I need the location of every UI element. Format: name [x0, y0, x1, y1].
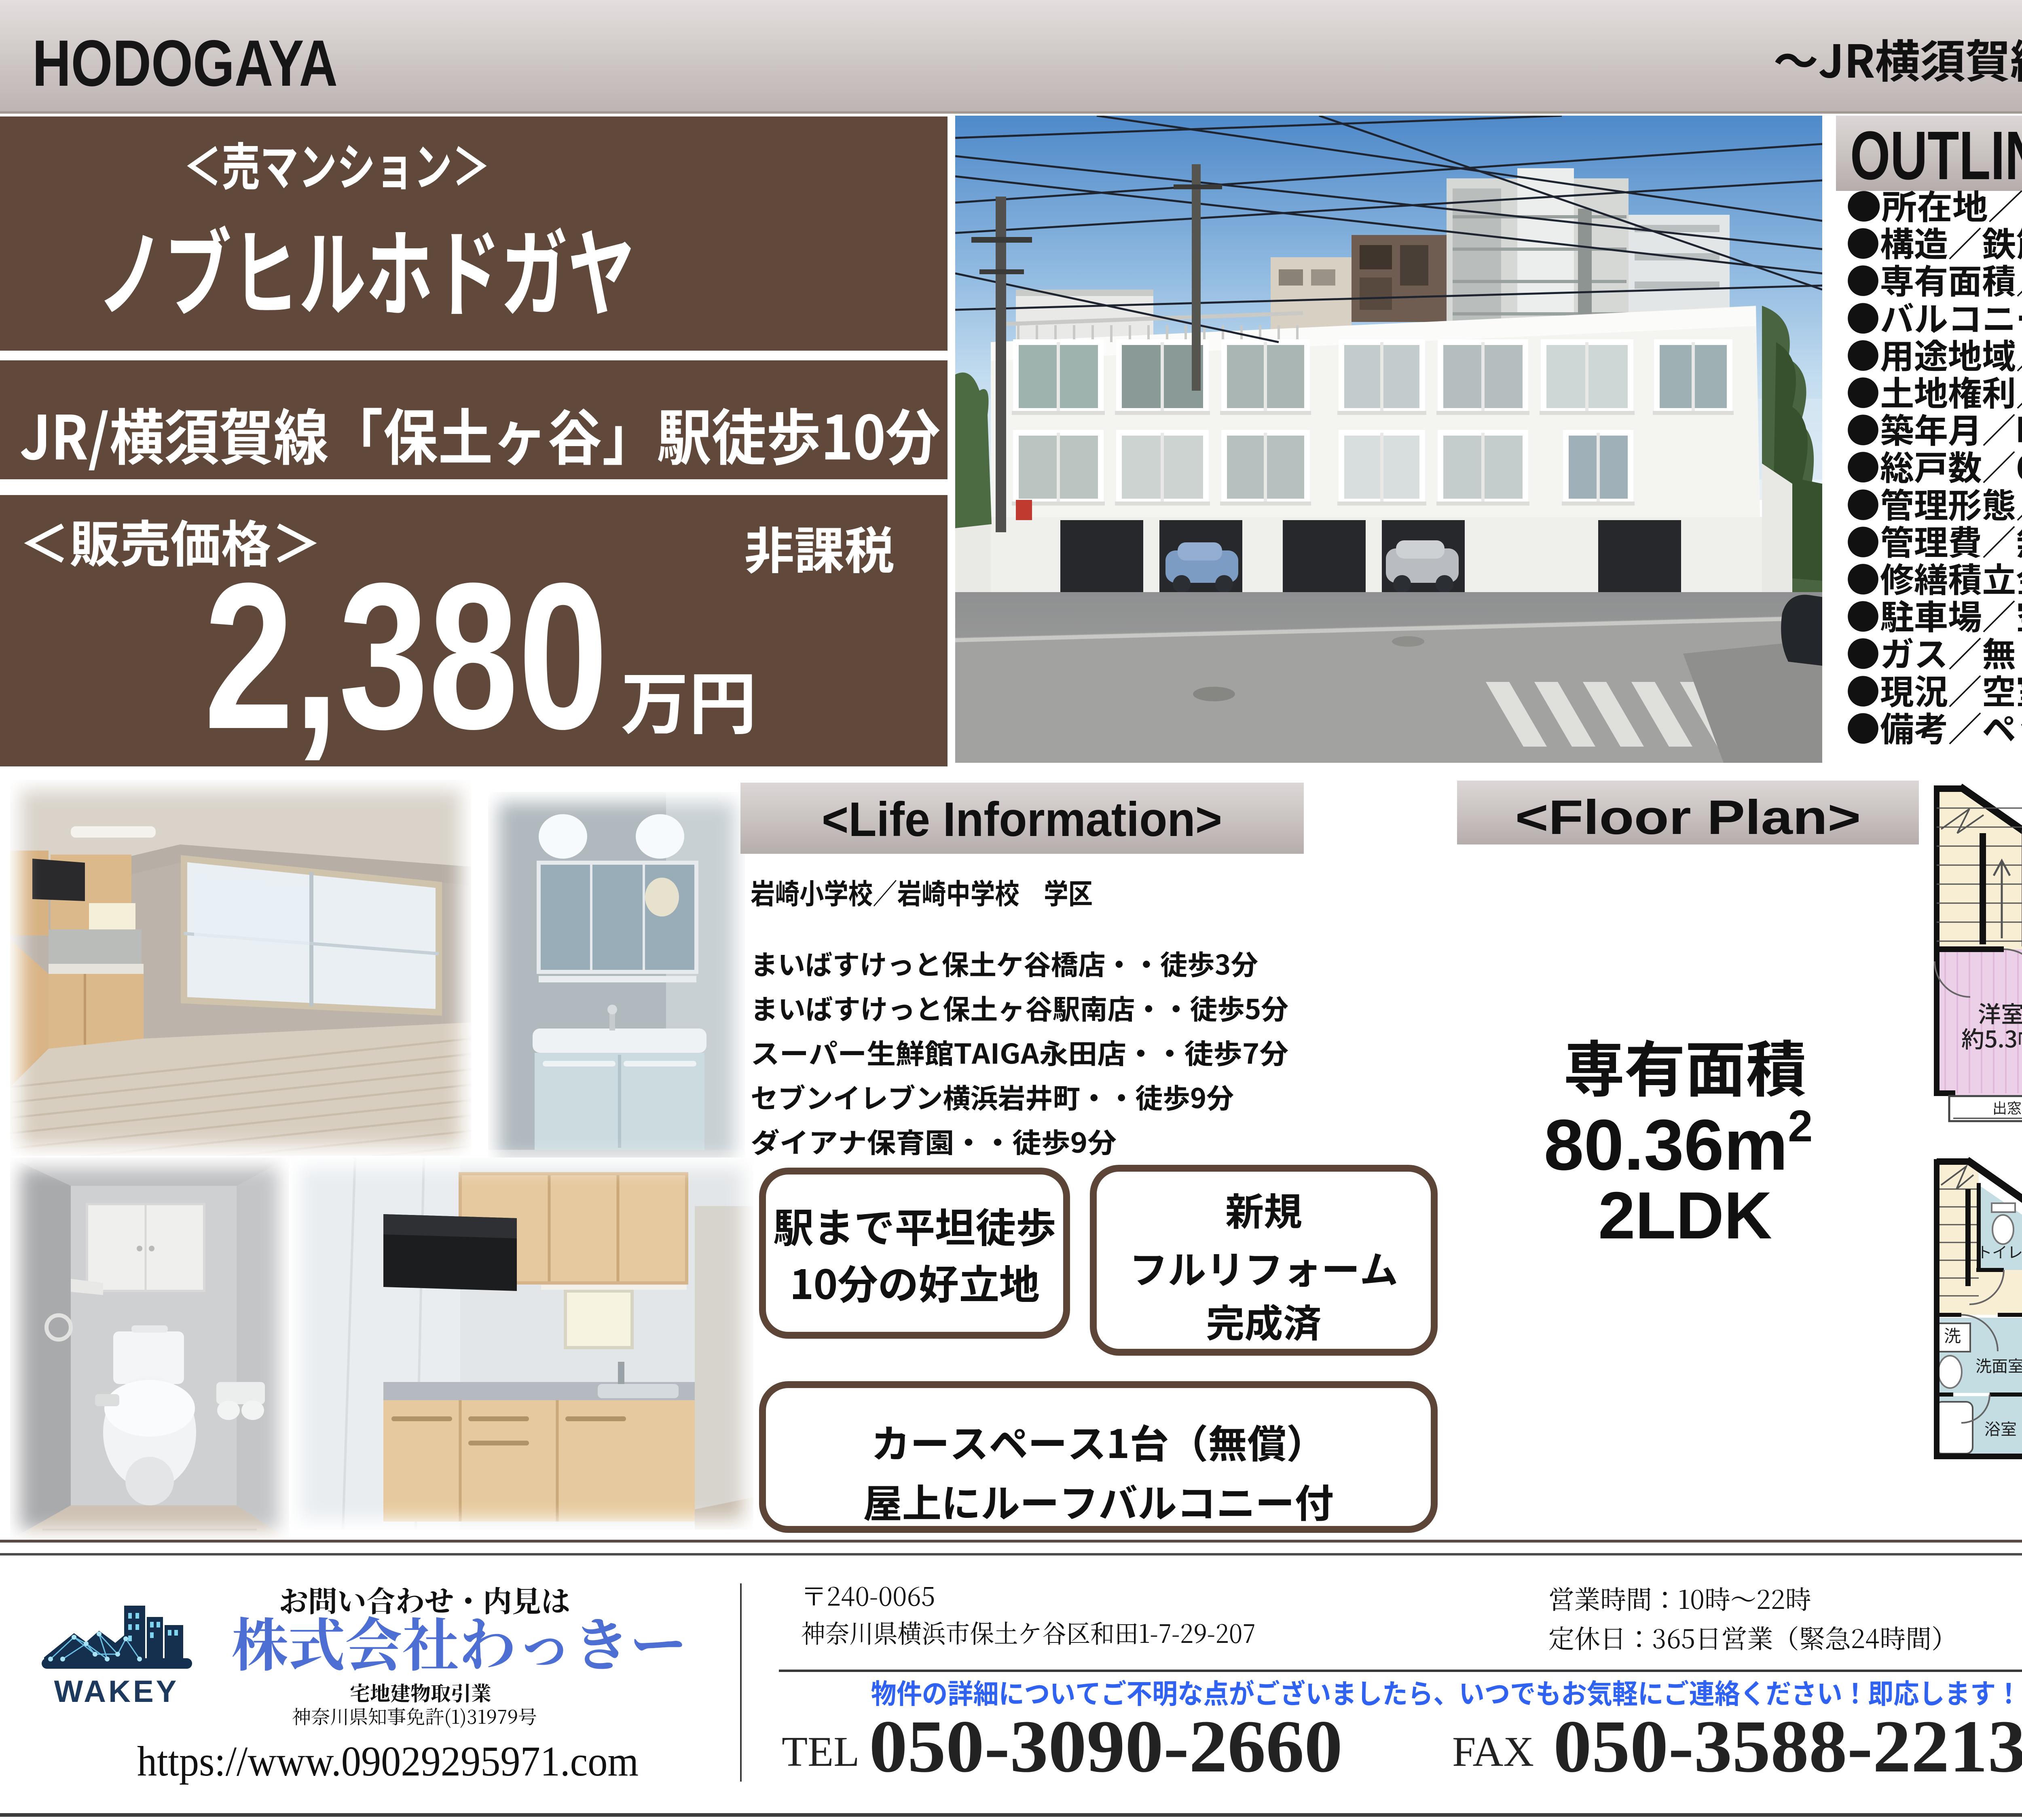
svg-text:80.36m2: 80.36m2: [1544, 1101, 1813, 1185]
svg-text:050-3588-2213: 050-3588-2213: [1553, 1705, 2022, 1788]
svg-text:050-3090-2660: 050-3090-2660: [869, 1705, 1343, 1788]
svg-text:2LDK: 2LDK: [1598, 1178, 1772, 1253]
svg-text:TEL: TEL: [782, 1728, 859, 1775]
svg-text:HODOGAYA: HODOGAYA: [32, 27, 338, 100]
svg-text:FAX: FAX: [1452, 1728, 1534, 1775]
svg-text:<Life Information>: <Life Information>: [822, 792, 1222, 847]
svg-text:<Floor Plan>: <Floor Plan>: [1515, 790, 1861, 844]
svg-text:2,380: 2,380: [204, 540, 608, 772]
svg-text:OUTLINE: OUTLINE: [1850, 117, 2022, 194]
svg-text:https://www.09029295971.com: https://www.09029295971.com: [137, 1737, 639, 1785]
